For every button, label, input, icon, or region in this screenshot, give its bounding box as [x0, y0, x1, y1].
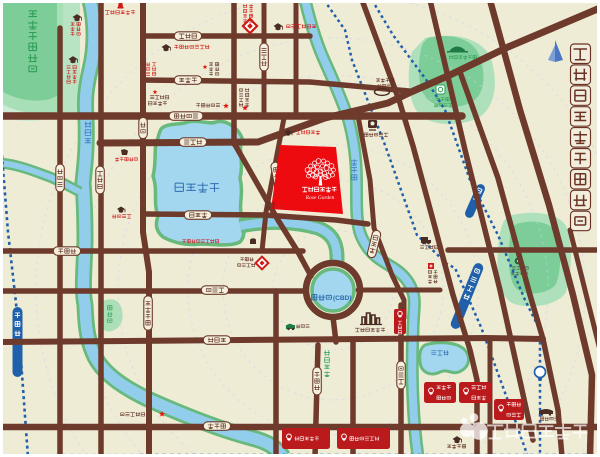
svg-text:(CBD): (CBD) — [333, 295, 351, 302]
svg-text:Rose Garden: Rose Garden — [305, 195, 335, 201]
